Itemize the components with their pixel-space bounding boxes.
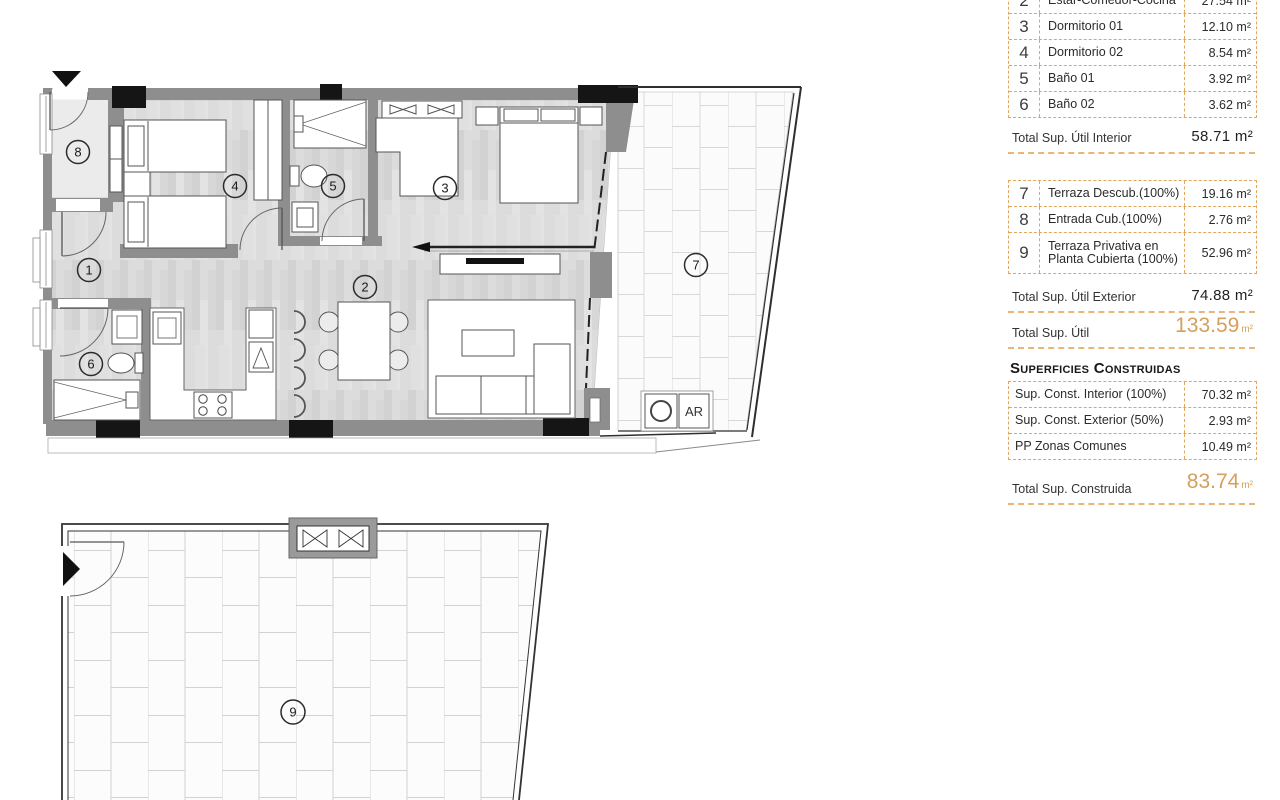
surface-name: PP Zonas Comunes — [1009, 434, 1184, 459]
room-number: 2 — [1009, 0, 1040, 13]
total-label: Total Sup. Útil Interior — [1012, 131, 1132, 145]
room-name: Terraza Descub.(100%) — [1040, 181, 1184, 206]
room-number: 5 — [1009, 66, 1040, 91]
svg-text:3: 3 — [441, 181, 448, 196]
facade-sill — [48, 438, 656, 453]
chair — [388, 312, 408, 332]
sill-edge — [656, 440, 760, 452]
room-area: 3.62 m² — [1184, 92, 1256, 117]
total-value-orange: 133.59m² — [1175, 316, 1253, 340]
room-number: 8 — [1009, 207, 1040, 232]
room-number: 9 — [1009, 233, 1040, 273]
svg-text:5: 5 — [329, 179, 336, 194]
fridge — [249, 342, 273, 372]
room-number: 6 — [1009, 92, 1040, 117]
room-name: Terraza Privativa en Planta Cubierta (10… — [1040, 233, 1184, 273]
toilet — [290, 166, 299, 186]
svg-text:4: 4 — [231, 179, 238, 194]
table-row: 2 Estar-Comedor-Cocina 27.54 m² — [1009, 0, 1256, 14]
washer-drum-icon — [651, 401, 671, 421]
table-row: 4 Dormitorio 02 8.54 m² — [1009, 40, 1256, 66]
surface-area: 2.93 m² — [1184, 408, 1256, 433]
total-value: 58.71 m² — [1191, 128, 1253, 145]
nightstand — [124, 172, 150, 196]
surface-area: 70.32 m² — [1184, 382, 1256, 407]
total-value: 74.88 m² — [1191, 287, 1253, 304]
floorplan-sheet: AR 1 2 3 4 5 6 7 8 — [0, 0, 1280, 800]
oven — [249, 310, 273, 338]
table-row: 9 Terraza Privativa en Planta Cubierta (… — [1009, 233, 1256, 273]
table-row: 6 Baño 02 3.62 m² — [1009, 92, 1256, 117]
room-area: 2.76 m² — [1184, 207, 1256, 232]
table-row: 8 Entrada Cub.(100%) 2.76 m² — [1009, 207, 1256, 233]
total-constructed-row: Total Sup. Construida 83.74m² — [1008, 472, 1255, 505]
room-name: Dormitorio 02 — [1040, 40, 1184, 65]
svg-text:9: 9 — [289, 705, 296, 720]
total-label: Total Sup. Útil — [1012, 326, 1089, 340]
table-row: Sup. Const. Interior (100%) 70.32 m² — [1009, 382, 1256, 408]
room-number: 3 — [1009, 14, 1040, 39]
table-row: Sup. Const. Exterior (50%) 2.93 m² — [1009, 408, 1256, 434]
room-name: Baño 02 — [1040, 92, 1184, 117]
room-area: 27.54 m² — [1184, 0, 1256, 13]
constructed-surfaces-header: Superficies Construidas — [1010, 360, 1181, 377]
dining-table — [338, 302, 390, 380]
room-area: 12.10 m² — [1184, 14, 1256, 39]
chair — [388, 350, 408, 370]
room-name: Estar-Comedor-Cocina — [1040, 0, 1184, 13]
tv-console — [440, 254, 560, 274]
surface-area: 10.49 m² — [1184, 434, 1256, 459]
room-area: 3.92 m² — [1184, 66, 1256, 91]
chair — [319, 350, 339, 370]
total-label: Total Sup. Útil Exterior — [1012, 290, 1136, 304]
roof-skylight-box — [289, 518, 377, 558]
chaise — [534, 344, 570, 414]
total-value-orange: 83.74m² — [1187, 472, 1253, 496]
nightstand — [476, 107, 498, 125]
floor-plans-canvas: AR 1 2 3 4 5 6 7 8 — [0, 0, 1000, 800]
room-area: 8.54 m² — [1184, 40, 1256, 65]
svg-text:1: 1 — [85, 263, 92, 278]
table-row: 7 Terraza Descub.(100%) 19.16 m² — [1009, 181, 1256, 207]
tv — [466, 258, 524, 264]
utility-units: AR — [641, 391, 713, 431]
room-name: Baño 01 — [1040, 66, 1184, 91]
roof-terrace-floor — [68, 531, 541, 800]
nightstand — [580, 107, 602, 125]
chair — [319, 312, 339, 332]
room-area: 19.16 m² — [1184, 181, 1256, 206]
terrace-floor — [618, 92, 793, 431]
surface-name: Sup. Const. Exterior (50%) — [1009, 408, 1184, 433]
ac-unit-label: AR — [685, 404, 703, 419]
apartment-floor-plan: AR 1 2 3 4 5 6 7 8 — [33, 71, 801, 453]
entry-arrow-icon — [52, 71, 81, 87]
room-number: 7 — [1009, 181, 1040, 206]
roof-terrace-plan: 9 — [58, 518, 548, 800]
table-row: 5 Baño 01 3.92 m² — [1009, 66, 1256, 92]
total-util-row: Total Sup. Útil 133.59m² — [1008, 316, 1255, 349]
total-interior-row: Total Sup. Útil Interior 58.71 m² — [1008, 128, 1255, 154]
room-name: Entrada Cub.(100%) — [1040, 207, 1184, 232]
surface-name: Sup. Const. Interior (100%) — [1009, 382, 1184, 407]
coffee-table — [462, 330, 514, 356]
total-label: Total Sup. Construida — [1012, 482, 1132, 496]
constructed-surfaces-table: Sup. Const. Interior (100%) 70.32 m² Sup… — [1008, 381, 1257, 460]
svg-text:6: 6 — [87, 357, 94, 372]
svg-text:8: 8 — [74, 145, 81, 160]
svg-text:2: 2 — [361, 280, 368, 295]
interior-surfaces-table: 2 Estar-Comedor-Cocina 27.54 m² 3 Dormit… — [1008, 0, 1257, 118]
table-row: 3 Dormitorio 01 12.10 m² — [1009, 14, 1256, 40]
room-number: 4 — [1009, 40, 1040, 65]
room-name: Dormitorio 01 — [1040, 14, 1184, 39]
shower — [294, 100, 366, 148]
total-exterior-row: Total Sup. Útil Exterior 74.88 m² — [1008, 287, 1255, 313]
svg-text:7: 7 — [692, 258, 699, 273]
toilet — [135, 353, 143, 373]
table-row: PP Zonas Comunes 10.49 m² — [1009, 434, 1256, 459]
surface-summary-panel: 2 Estar-Comedor-Cocina 27.54 m² 3 Dormit… — [1008, 0, 1257, 800]
exterior-surfaces-table: 7 Terraza Descub.(100%) 19.16 m² 8 Entra… — [1008, 180, 1257, 274]
room-area: 52.96 m² — [1184, 233, 1256, 273]
